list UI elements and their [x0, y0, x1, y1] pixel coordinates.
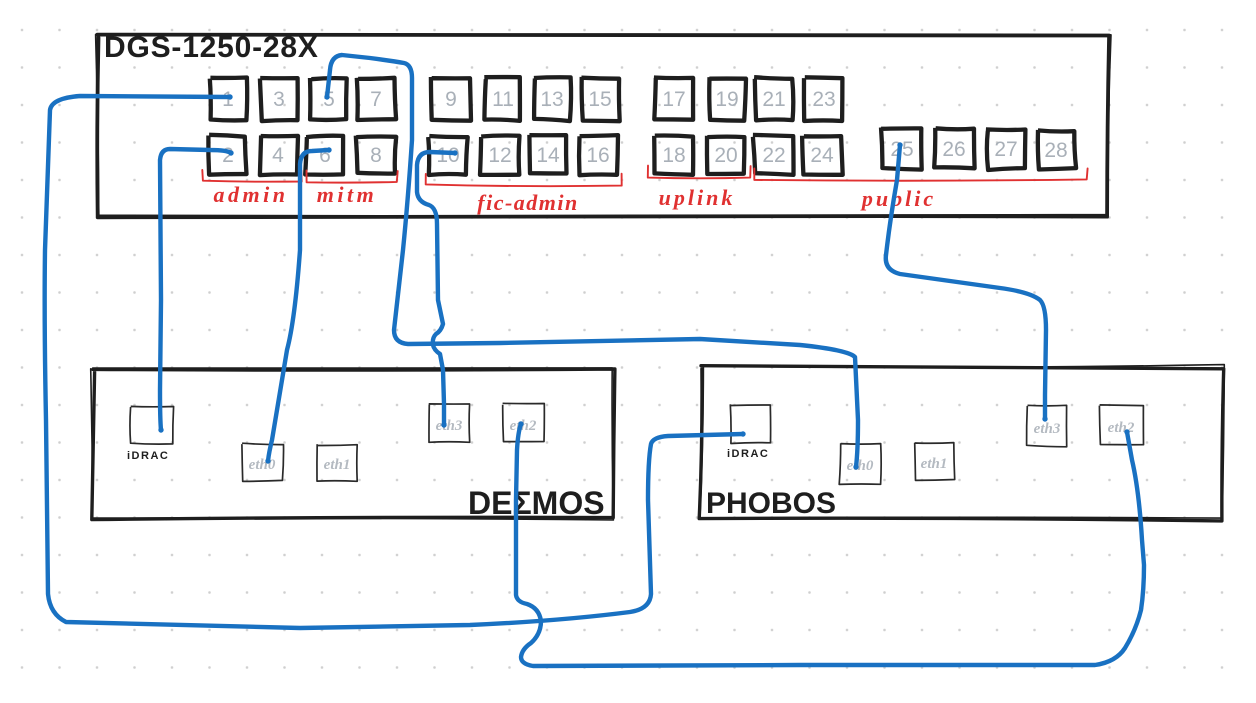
- svg-text:eth0: eth0: [249, 457, 276, 473]
- svg-text:eth0: eth0: [847, 458, 874, 474]
- svg-text:19: 19: [715, 88, 738, 111]
- svg-text:iDRAC: iDRAC: [727, 448, 769, 460]
- svg-text:9: 9: [445, 88, 457, 111]
- svg-text:13: 13: [540, 88, 563, 111]
- svg-text:eth2: eth2: [1108, 420, 1135, 436]
- svg-text:8: 8: [370, 144, 382, 167]
- svg-text:20: 20: [714, 144, 737, 167]
- svg-text:iDRAC: iDRAC: [127, 450, 169, 462]
- svg-text:26: 26: [942, 138, 965, 161]
- svg-text:11: 11: [492, 88, 514, 111]
- svg-text:fic-admin: fic-admin: [477, 190, 579, 215]
- svg-text:DGS-1250-28X: DGS-1250-28X: [104, 31, 319, 64]
- svg-text:16: 16: [586, 144, 609, 167]
- svg-text:17: 17: [662, 88, 685, 111]
- svg-text:21: 21: [762, 88, 785, 111]
- svg-text:7: 7: [370, 88, 382, 111]
- svg-text:25: 25: [890, 138, 913, 161]
- svg-text:12: 12: [488, 144, 511, 167]
- svg-text:2: 2: [222, 144, 234, 167]
- svg-text:DEΣMOS: DEΣMOS: [468, 485, 605, 521]
- svg-text:23: 23: [812, 88, 835, 111]
- svg-text:public: public: [860, 186, 936, 211]
- svg-text:3: 3: [273, 88, 285, 111]
- svg-text:eth1: eth1: [921, 456, 948, 472]
- svg-text:PHOBOS: PHOBOS: [706, 487, 836, 520]
- svg-text:eth3: eth3: [1034, 421, 1061, 437]
- svg-text:22: 22: [762, 144, 785, 167]
- svg-text:mitm: mitm: [317, 182, 377, 207]
- svg-text:10: 10: [436, 144, 459, 167]
- svg-text:admin: admin: [214, 182, 289, 207]
- svg-text:4: 4: [272, 144, 284, 167]
- svg-text:27: 27: [994, 138, 1017, 161]
- svg-text:15: 15: [588, 88, 611, 111]
- svg-text:eth1: eth1: [324, 457, 351, 473]
- svg-text:24: 24: [810, 144, 834, 167]
- svg-text:28: 28: [1044, 139, 1067, 162]
- svg-text:eth3: eth3: [436, 418, 463, 434]
- svg-text:14: 14: [536, 144, 560, 167]
- svg-text:18: 18: [662, 144, 685, 167]
- svg-text:uplink: uplink: [659, 185, 736, 210]
- svg-text:1: 1: [222, 88, 234, 111]
- svg-text:eth2: eth2: [510, 418, 537, 434]
